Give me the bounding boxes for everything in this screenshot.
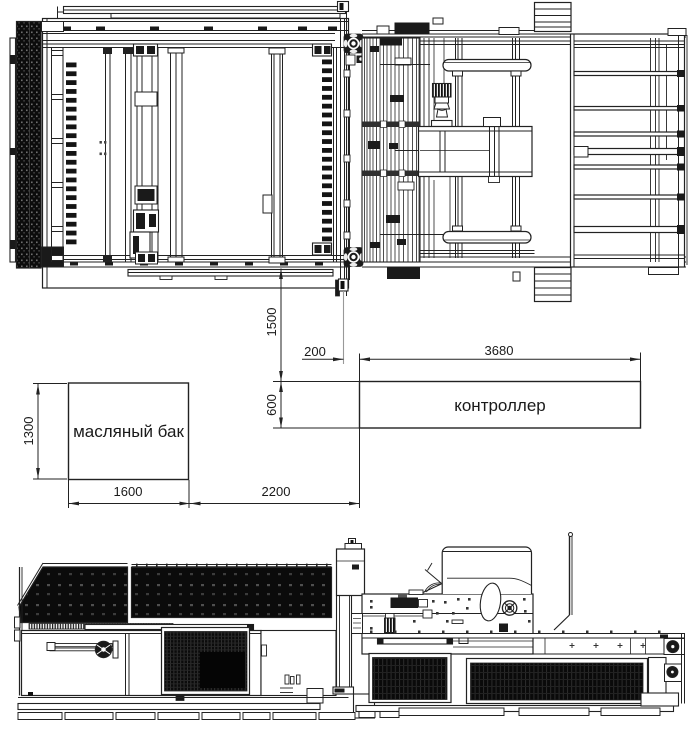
svg-text:1600: 1600 — [114, 484, 143, 499]
svg-text:2200: 2200 — [262, 484, 291, 499]
svg-text:контроллер: контроллер — [454, 396, 546, 415]
svg-text:600: 600 — [264, 394, 279, 416]
svg-text:3680: 3680 — [485, 343, 514, 358]
svg-text:1300: 1300 — [21, 417, 36, 446]
svg-text:200: 200 — [304, 344, 326, 359]
svg-text:1500: 1500 — [264, 308, 279, 337]
svg-text:масляный бак: масляный бак — [73, 422, 184, 441]
